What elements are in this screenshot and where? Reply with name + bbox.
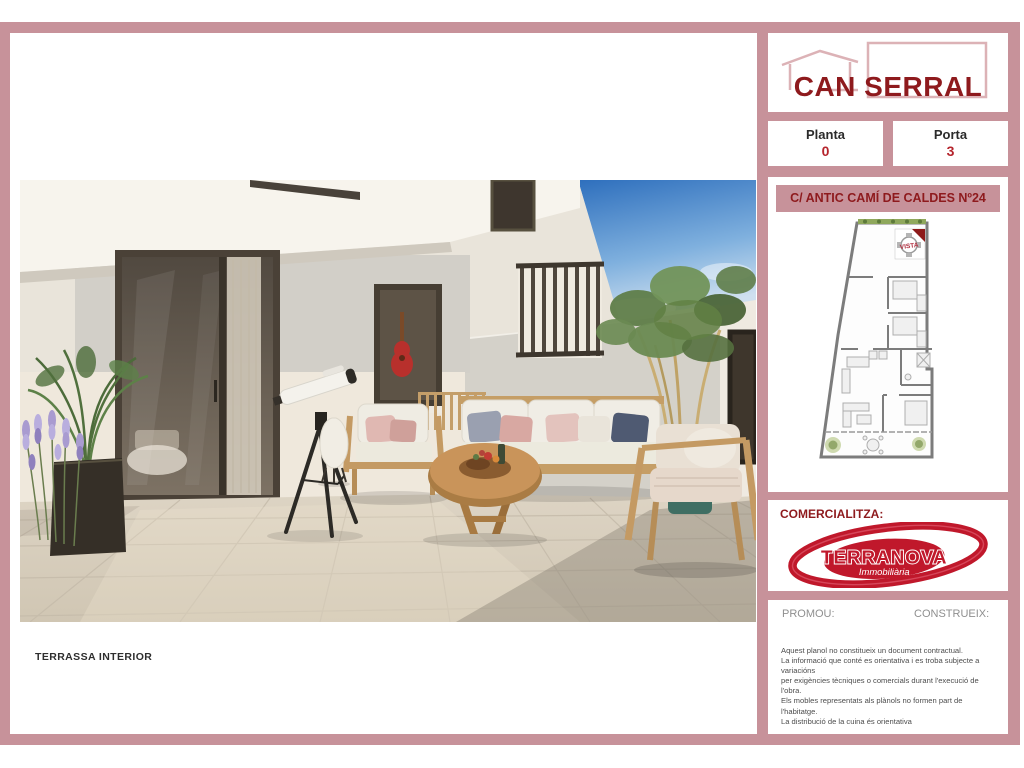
address-band: C/ ANTIC CAMÍ DE CALDES Nº24 bbox=[776, 185, 1000, 212]
vista-stamp: VISTA bbox=[895, 229, 925, 259]
comercializa-box: COMERCIALITZA: TERRANOVA Immobiliària bbox=[768, 500, 1008, 591]
door-handle bbox=[214, 380, 217, 402]
main-panel: TERRASSA INTERIOR bbox=[10, 33, 757, 734]
photo-caption: TERRASSA INTERIOR bbox=[35, 651, 152, 663]
project-logo-box: CAN SERRAL bbox=[768, 33, 1008, 112]
pillow-cream bbox=[684, 428, 736, 468]
planta-label: Planta bbox=[768, 127, 883, 142]
disclaimer-line: per exigències tècniques o comercials du… bbox=[781, 676, 1001, 696]
flowers bbox=[484, 452, 492, 460]
pink-frame: TERRASSA INTERIOR CAN SERRAL Planta 0 Po… bbox=[0, 22, 1020, 745]
disclaimer-line: La informació que conté es orientativa i… bbox=[781, 656, 1001, 676]
porta-box: Porta 3 bbox=[893, 121, 1008, 166]
construeix-label: CONSTRUEIX: bbox=[914, 608, 989, 620]
floorplan-drawing: VISTA bbox=[813, 217, 963, 487]
porta-label: Porta bbox=[893, 127, 1008, 142]
disclaimer-text: Aquest planol no constitueix un document… bbox=[781, 646, 1001, 727]
balcony-railing bbox=[516, 264, 604, 358]
disclaimer-line: Els mobles representats als plànols no f… bbox=[781, 696, 1001, 716]
bottle bbox=[498, 444, 505, 464]
vase bbox=[318, 418, 350, 487]
pillow-white bbox=[578, 416, 610, 442]
flyer-page: TERRASSA INTERIOR CAN SERRAL Planta 0 Po… bbox=[0, 0, 1024, 768]
pillow-navy bbox=[611, 412, 650, 446]
planta-box: Planta 0 bbox=[768, 121, 883, 166]
terranova-logo: TERRANOVA Immobiliària bbox=[780, 522, 996, 588]
comercializa-label: COMERCIALITZA: bbox=[780, 507, 883, 521]
floorplan-box: C/ ANTIC CAMÍ DE CALDES Nº24 bbox=[768, 177, 1008, 492]
project-title: CAN SERRAL bbox=[768, 71, 1008, 103]
pillow-blush bbox=[545, 413, 581, 443]
disclaimer-line: La distribució de la cuina és orientativ… bbox=[781, 717, 1001, 727]
pillow-gray bbox=[467, 410, 504, 443]
upper-window bbox=[492, 180, 534, 230]
planta-value: 0 bbox=[768, 143, 883, 159]
terrace-render bbox=[20, 180, 756, 622]
terranova-brand-text: TERRANOVA bbox=[821, 546, 947, 567]
sliding-door bbox=[115, 250, 280, 502]
pillow-pink bbox=[499, 415, 533, 446]
promoters-box: PROMOU: CONSTRUEIX: Aquest planol no con… bbox=[768, 600, 1008, 734]
terrace-photo bbox=[20, 180, 756, 622]
disclaimer-line: Aquest planol no constitueix un document… bbox=[781, 646, 1001, 656]
pillow-pink bbox=[389, 419, 416, 443]
porta-value: 3 bbox=[893, 143, 1008, 159]
promou-label: PROMOU: bbox=[782, 608, 835, 620]
terranova-sub-text: Immobiliària bbox=[859, 566, 910, 577]
